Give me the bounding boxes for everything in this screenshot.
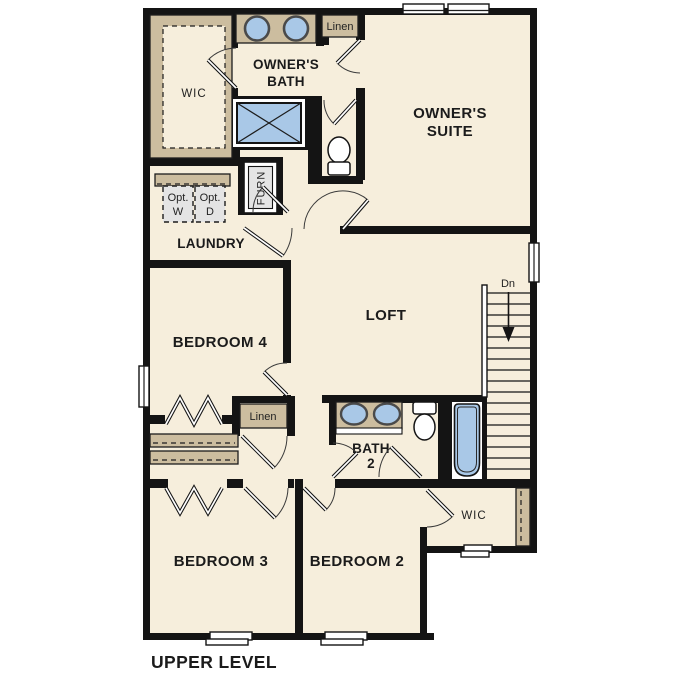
linen-mid-label: Linen xyxy=(250,411,277,423)
owners-bath-label-2: BATH xyxy=(267,74,305,89)
bedroom2-label: BEDROOM 2 xyxy=(310,553,404,570)
plan-title: UPPER LEVEL xyxy=(151,652,277,672)
optional-dryer-box: Opt. D xyxy=(195,186,225,222)
owners-bath-label-1: OWNER'S xyxy=(253,57,319,72)
floor-plan: WIC OWNER'S BATH Linen OWNER'S SUI xyxy=(0,0,687,687)
wic-top-closet: WIC xyxy=(150,15,232,158)
window-top-1 xyxy=(403,4,444,14)
opt-dryer-label-2: D xyxy=(206,206,214,218)
toilet-icon xyxy=(328,137,350,175)
sink-icon xyxy=(341,404,367,425)
opt-dryer-label-1: Opt. xyxy=(200,192,221,204)
window-right-stair xyxy=(529,243,539,282)
window-top-2 xyxy=(448,4,489,14)
linen-top-label: Linen xyxy=(327,21,354,33)
stair-railing xyxy=(482,285,487,397)
bedroom4-label: BEDROOM 4 xyxy=(173,334,268,351)
loft-label: LOFT xyxy=(366,307,407,324)
window-bottom-bedroom3 xyxy=(206,632,252,645)
floor-plan-page: WIC OWNER'S BATH Linen OWNER'S SUI xyxy=(0,0,687,687)
bedroom3-label: BEDROOM 3 xyxy=(174,553,268,570)
bath2-label-1: BATH xyxy=(352,441,390,456)
window-left-bedroom4 xyxy=(139,366,149,407)
optional-washer-box: Opt. W xyxy=(163,186,193,222)
sink-icon xyxy=(284,17,308,41)
sink-icon xyxy=(374,404,400,425)
opt-washer-label-2: W xyxy=(173,206,184,218)
wic-top-label: WIC xyxy=(181,88,206,100)
toilet-icon xyxy=(413,402,436,440)
furnace-box: FURN xyxy=(244,162,277,213)
window-bottom-bedroom2 xyxy=(321,632,367,645)
linen-top-closet: Linen xyxy=(322,15,358,37)
stairs-dn-label: Dn xyxy=(501,278,515,290)
wic-bottom-label: WIC xyxy=(461,510,486,522)
shower-icon xyxy=(233,99,305,147)
bathtub-icon xyxy=(452,402,482,479)
owners-suite-label-2: SUITE xyxy=(427,123,473,140)
sink-icon xyxy=(245,17,269,41)
owners-suite-label-1: OWNER'S xyxy=(413,105,487,122)
laundry-label: LAUNDRY xyxy=(177,236,245,251)
linen-mid-closet: Linen xyxy=(240,404,287,428)
window-wic-bottom xyxy=(461,545,492,557)
opt-washer-label-1: Opt. xyxy=(168,192,189,204)
bath2-label-2: 2 xyxy=(367,456,375,471)
